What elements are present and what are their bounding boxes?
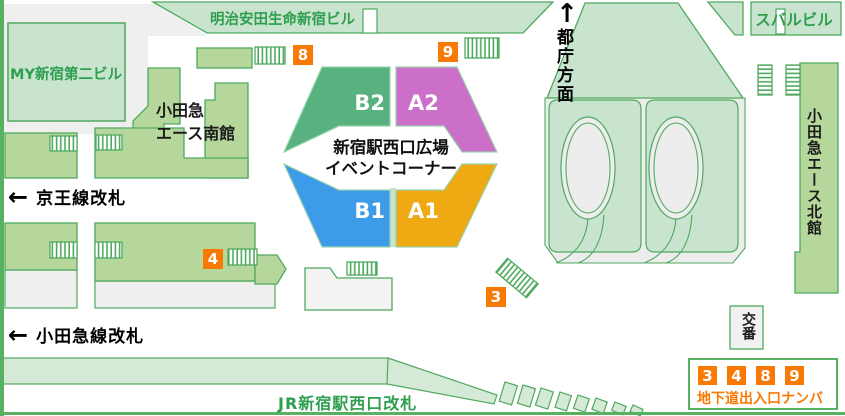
meiji-yasuda-label: 明治安田生命新宿ビル bbox=[209, 8, 356, 29]
left-arrow-icon: ← bbox=[8, 323, 28, 347]
my-shinjuku-label: MY新宿第二ビル bbox=[6, 63, 126, 84]
event-corner-title-line2: イベントコーナー bbox=[315, 158, 467, 179]
exit-badge-4: 4 bbox=[203, 249, 223, 269]
legend-caption: 地下道出入口ナンバー bbox=[697, 388, 836, 416]
legend-badge-9: 9 bbox=[785, 366, 804, 385]
block-left-gray bbox=[5, 270, 77, 308]
legend-badge-4: 4 bbox=[727, 366, 746, 385]
jr-gates-row bbox=[499, 382, 643, 416]
subaru-label: スバルビル bbox=[753, 8, 835, 30]
legend-badge-3: 3 bbox=[698, 366, 717, 385]
legend-box: 3 4 8 9 地下道出入口ナンバー bbox=[688, 358, 838, 410]
left-arrow-icon: ← bbox=[8, 185, 28, 209]
keio-gate-label: 京王線改札 bbox=[36, 184, 126, 209]
jr-gate-label: JR新宿駅西口改札 bbox=[278, 390, 417, 414]
border-left bbox=[0, 0, 4, 416]
ace-north-label: 小田急エース北館 bbox=[804, 108, 825, 236]
tocho-label: 都庁方面 bbox=[551, 28, 576, 104]
band-notch bbox=[363, 9, 377, 33]
keio-gate-row: ← 京王線改札 bbox=[8, 184, 126, 209]
event-corner-title-line1: 新宿駅西口広場 bbox=[315, 137, 467, 158]
ace-south-label-line2: エース南館 bbox=[156, 120, 235, 144]
zone-a1-label: A1 bbox=[408, 199, 463, 223]
legend-badge-8: 8 bbox=[756, 366, 775, 385]
exit-badge-9: 9 bbox=[438, 42, 458, 62]
legend-badges: 3 4 8 9 bbox=[698, 366, 804, 385]
koban-label: 交番 bbox=[738, 312, 758, 340]
odakyu-gate-label: 小田急線改札 bbox=[36, 322, 144, 347]
zone-a2-label: A2 bbox=[408, 91, 463, 115]
ramp-loop-left-inner bbox=[566, 123, 610, 213]
subaru-building-west bbox=[708, 2, 743, 35]
ramp-loop-right-inner bbox=[654, 123, 698, 213]
zone-b1-label: B1 bbox=[330, 199, 385, 223]
exit-badge-3: 3 bbox=[486, 287, 506, 307]
block-right-gray bbox=[95, 281, 275, 308]
exit-badge-8: 8 bbox=[293, 45, 313, 65]
jr-band bbox=[0, 358, 388, 384]
zone-b2-label: B2 bbox=[330, 91, 385, 115]
ace-south-label-line1: 小田急 bbox=[156, 97, 204, 121]
block-right-tab bbox=[255, 255, 286, 284]
hexagon-south-path bbox=[390, 188, 396, 247]
small-building-top bbox=[197, 48, 252, 68]
event-corner-title: 新宿駅西口広場 イベントコーナー bbox=[315, 137, 467, 179]
station-map: 明治安田生命新宿ビル スバルビル MY新宿第二ビル 小田急 エース南館 小田急エ… bbox=[0, 0, 845, 416]
tocho-direction: ↑ 都庁方面 bbox=[551, 0, 583, 104]
up-arrow-icon: ↑ bbox=[551, 0, 583, 28]
odakyu-gate-row: ← 小田急線改札 bbox=[8, 322, 144, 347]
